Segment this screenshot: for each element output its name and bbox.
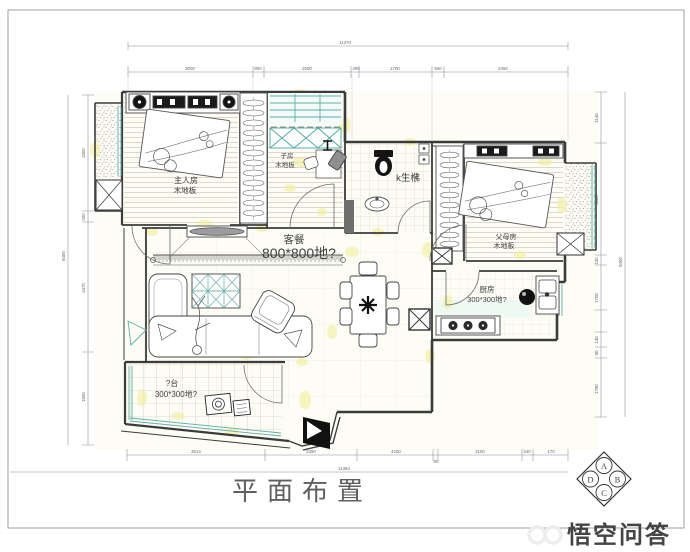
watermark: 悟空问答	[529, 521, 671, 549]
wardrobe-icon	[270, 128, 341, 148]
dim-right-seg: 1700	[594, 293, 599, 303]
dim-right-seg: 90	[594, 350, 599, 355]
pot-icon	[519, 289, 535, 305]
master-room-label: 主人房	[174, 175, 198, 185]
ref-letter-a: A	[601, 461, 608, 471]
dim-left-total: 8400	[61, 251, 66, 261]
bed-icon	[139, 109, 230, 179]
dim-bottom-total: 11384	[338, 466, 350, 471]
dim-bottom-seg: 2150	[475, 449, 485, 454]
dim-bottom-seg: 90	[434, 459, 439, 464]
bathroom-label: k生梻	[396, 172, 420, 184]
watermark-text: 悟空问答	[567, 521, 671, 549]
dim-right-seg: 1780	[594, 384, 599, 394]
watermark-logo-icon	[545, 527, 561, 543]
dim-top-seg: 300	[352, 66, 360, 71]
dim-left-seg: 3470	[81, 283, 86, 293]
dim-top-total: 11370	[339, 40, 351, 45]
dim-top-seg: 1700	[390, 66, 400, 71]
dim-top-seg: 2450	[498, 66, 508, 71]
stove-icon	[436, 316, 500, 335]
drawing-title: 平面布置	[232, 476, 372, 506]
master-floor-label: 木地板	[174, 185, 197, 195]
kitchen-label: 厨房	[480, 284, 495, 294]
hanger-rail-icon	[436, 146, 463, 251]
column-icon	[557, 233, 584, 255]
parents-room-label: 父母房	[496, 232, 517, 241]
parents-floor-label: 木地板	[494, 241, 515, 250]
dim-top-seg: 2500	[302, 66, 312, 71]
floor-plan-canvas: 11370 3000 800 2500 300 1700 940 2450 35…	[0, 0, 690, 552]
ref-letter-b: B	[615, 475, 621, 485]
balcony-floor-label: 300*300地?	[155, 389, 198, 399]
balcony-label: ?台	[166, 378, 178, 388]
wardrobe-icon	[464, 144, 563, 158]
hanger-rail-icon	[240, 93, 267, 223]
pot-highlight	[522, 292, 526, 296]
kids-floor-label: 木地板	[275, 160, 295, 169]
dim-right-seg: 1140	[594, 113, 599, 123]
dim-bottom-seg: 170	[547, 449, 555, 454]
toilet-icon	[374, 150, 393, 176]
wardrobe-icon	[126, 92, 240, 113]
dim-bottom-seg: 3514	[191, 449, 201, 454]
sink-icon	[365, 197, 389, 211]
laundry-basket-icon	[233, 399, 250, 416]
watermark-logo-icon	[529, 527, 545, 543]
bay-window-cabinet-icon	[96, 180, 122, 210]
ref-letter-c: C	[601, 488, 607, 498]
dim-top-seg: 940	[434, 66, 442, 71]
dim-bottom-seg: 4200	[391, 449, 401, 454]
dim-left-seg: 200	[81, 213, 86, 221]
dim-top-seg: 3000	[185, 66, 195, 71]
dim-bottom-seg: 2390	[306, 449, 316, 454]
north-ref-icon: A B C D	[577, 452, 631, 506]
dim-top-seg: 800	[254, 66, 262, 71]
dim-bottom-seg: 240	[523, 449, 531, 454]
kids-room-label: 子房	[281, 151, 294, 160]
dim-right-seg: 140	[594, 336, 599, 344]
dim-right-total: 8400	[618, 257, 623, 267]
dim-left-seg: 3300	[81, 148, 86, 158]
dim-left-seg: 1800	[81, 392, 86, 402]
ref-letter-d: D	[587, 475, 593, 485]
kitchen-floor-label: 300*300地?	[467, 294, 507, 304]
kitchen-sink-icon	[536, 276, 559, 314]
floor-plan-page: 11370 3000 800 2500 300 1700 940 2450 35…	[0, 0, 690, 552]
living-floor-label: 800*800地?	[262, 245, 336, 261]
washing-machine-icon	[205, 393, 232, 415]
dim-right-seg: 130	[594, 257, 599, 265]
coffee-table-icon	[192, 274, 240, 308]
